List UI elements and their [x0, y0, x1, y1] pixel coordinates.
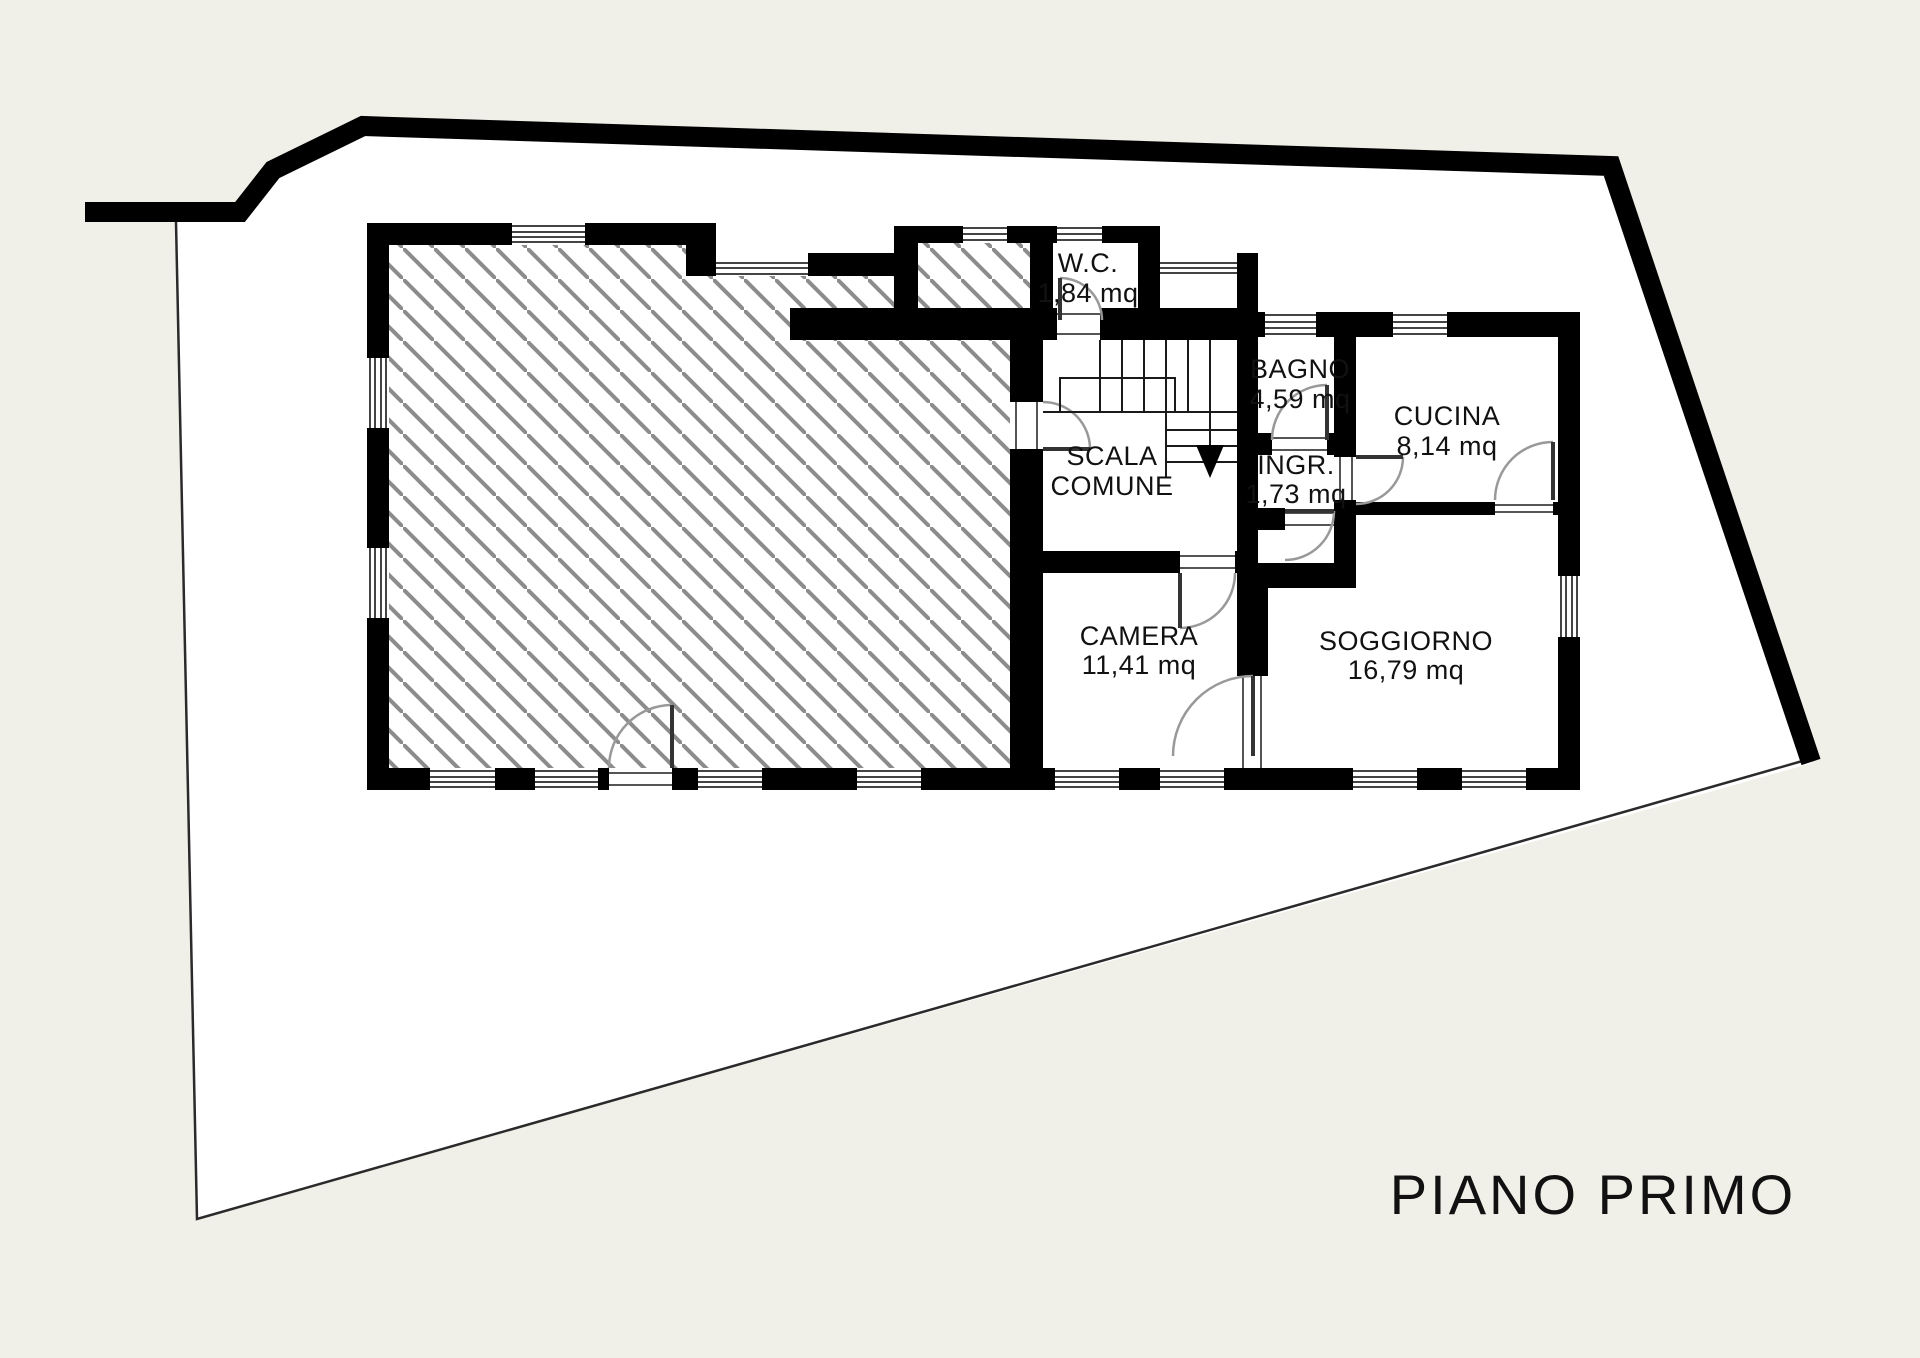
window	[1462, 768, 1526, 790]
label-ingresso-name: INGR.	[1257, 450, 1335, 480]
window	[367, 548, 389, 618]
window	[535, 768, 598, 790]
label-soggiorno-name: SOGGIORNO	[1319, 626, 1493, 656]
window	[716, 261, 808, 276]
window	[1393, 312, 1447, 337]
label-scala-line2: COMUNE	[1051, 471, 1174, 501]
floor-title: PIANO PRIMO	[1390, 1163, 1796, 1226]
floor-plan-page: W.C. 1,84 mq BAGNO 4,59 mq CUCINA 8,14 m…	[0, 0, 1920, 1358]
label-camera-name: CAMERA	[1080, 621, 1199, 651]
window	[1160, 261, 1237, 275]
window	[512, 223, 585, 245]
window	[963, 226, 1007, 243]
window	[1057, 226, 1102, 243]
window	[1160, 768, 1224, 790]
label-bagno-name: BAGNO	[1250, 354, 1350, 384]
window	[698, 768, 762, 790]
window	[430, 768, 495, 790]
window	[857, 768, 921, 790]
label-ingresso-area: 1,73 mq	[1245, 479, 1346, 509]
label-wc-name: W.C.	[1058, 248, 1119, 278]
label-cucina-name: CUCINA	[1394, 401, 1501, 431]
label-soggiorno-area: 16,79 mq	[1348, 655, 1465, 685]
label-camera-area: 11,41 mq	[1082, 650, 1197, 680]
window	[1353, 768, 1417, 790]
label-cucina-area: 8,14 mq	[1396, 431, 1497, 461]
window	[1558, 576, 1580, 637]
label-scala-line1: SCALA	[1066, 441, 1157, 471]
window	[1055, 768, 1119, 790]
label-bagno-area: 4,59 mq	[1249, 384, 1350, 414]
label-wc-area: 1,84 mq	[1037, 278, 1138, 308]
floor-plan-drawing: W.C. 1,84 mq BAGNO 4,59 mq CUCINA 8,14 m…	[0, 0, 1920, 1358]
window	[367, 358, 389, 428]
window	[1265, 312, 1316, 337]
